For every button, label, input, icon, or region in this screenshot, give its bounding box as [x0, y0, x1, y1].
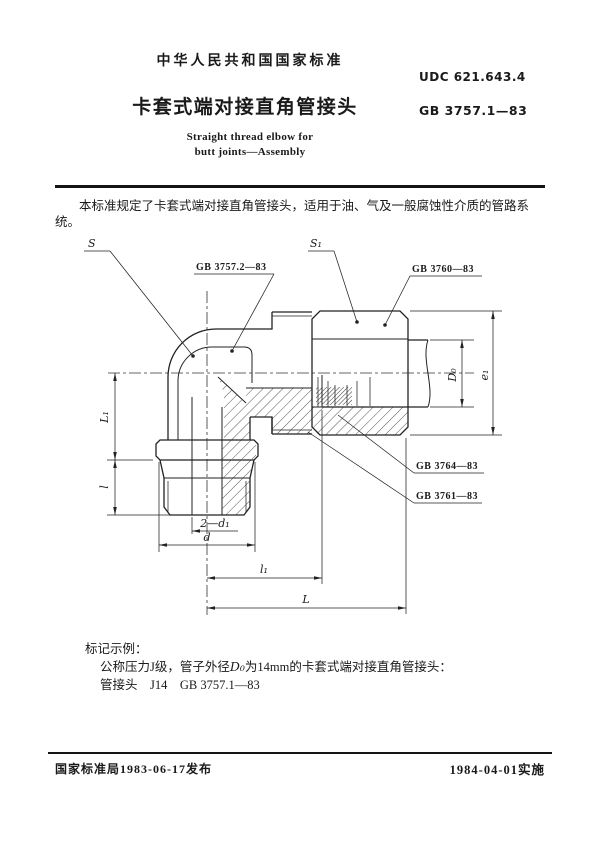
section-hatching — [218, 377, 408, 515]
marking-d0-symbol: D₀ — [230, 659, 245, 674]
dim-label-L1: L₁ — [98, 411, 111, 424]
dim-label-2d1: 2—d₁ — [199, 517, 229, 530]
dim-label-S1: S₁ — [310, 237, 322, 250]
dim-label-l1: l₁ — [260, 563, 268, 576]
marking-example-description: 公称压力J级，管子外径D₀为14mm的卡套式端对接直角管接头： — [100, 656, 452, 675]
dim-label-S: S — [88, 237, 96, 250]
part-label-nut: GB 3760—83 — [412, 264, 474, 275]
footer-issued-date: 国家标准局1983-06-17发布 — [55, 760, 212, 777]
english-title-line2: butt joints—Assembly — [0, 146, 500, 158]
dim-label-e1: e₁ — [478, 370, 491, 381]
scope-paragraph: 本标准规定了卡套式端对接直角管接头，适用于油、气及一般腐蚀性介质的管路系统。 — [55, 198, 529, 230]
standard-document-page: 中华人民共和国国家标准 UDC 621.643.4 卡套式端对接直角管接头 GB… — [0, 0, 600, 849]
leader-labels: S GB 3757.2—83 S₁ GB 3760—83 GB 3764—83 … — [84, 237, 484, 503]
ferrule-section — [316, 387, 352, 405]
marking-text-post: 为14mm的卡套式端对接直角管接头： — [245, 660, 452, 674]
dim-label-d: d — [203, 531, 210, 544]
part-label-ring: GB 3761—83 — [416, 491, 478, 502]
footer-divider — [48, 752, 552, 754]
dim-label-D0: D₀ — [446, 368, 459, 383]
national-standard-heading: 中华人民共和国国家标准 — [0, 50, 500, 70]
part-label-ferrule: GB 3764—83 — [416, 461, 478, 472]
standard-number: GB 3757.1—83 — [419, 103, 527, 118]
english-title-line1: Straight thread elbow for — [0, 131, 500, 143]
dim-label-l: l — [98, 485, 111, 489]
dim-label-L: L — [301, 593, 309, 606]
page-title: 卡套式端对接直角管接头 — [0, 92, 490, 119]
marking-example-heading: 标记示例： — [85, 638, 148, 657]
udc-number: UDC 621.643.4 — [419, 70, 526, 84]
footer-implemented-date: 1984-04-01实施 — [450, 759, 545, 778]
header-divider — [55, 185, 545, 188]
part-label-body: GB 3757.2—83 — [196, 262, 266, 273]
marking-text-pre: 公称压力J级，管子外径 — [100, 660, 230, 674]
technical-drawing-elbow-fitting: S GB 3757.2—83 S₁ GB 3760—83 GB 3764—83 … — [50, 235, 550, 630]
marking-designation: 管接头 J14 GB 3757.1—83 — [100, 674, 260, 693]
